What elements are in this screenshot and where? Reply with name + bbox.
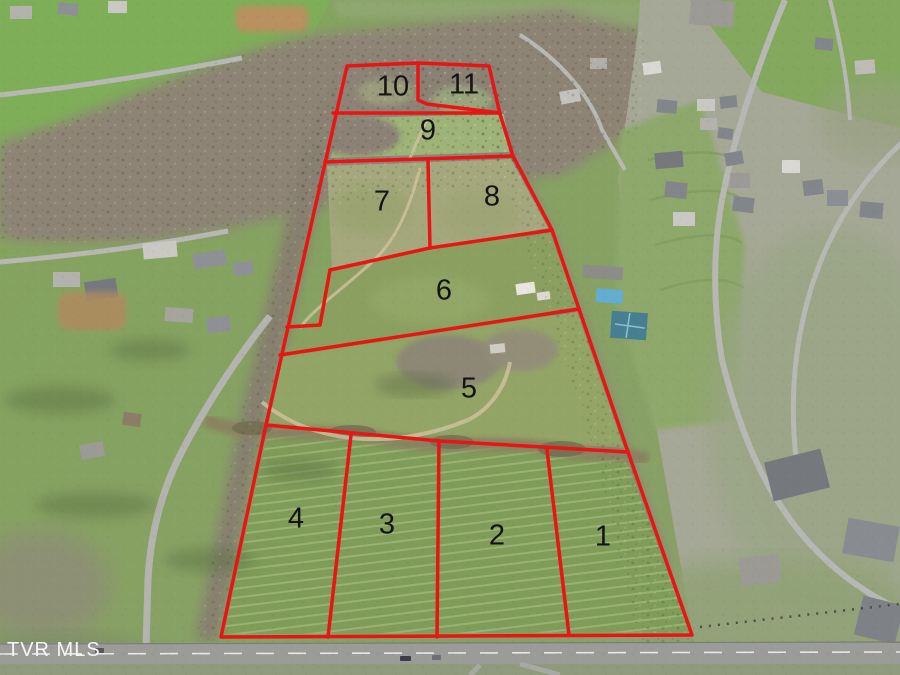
lot-2-1-divider bbox=[547, 450, 569, 635]
lot-4-3-divider bbox=[328, 435, 351, 637]
mls-watermark: TVR MLS bbox=[7, 639, 101, 662]
lot-7-8-north-line bbox=[325, 156, 513, 162]
lot-3-2-divider bbox=[437, 441, 439, 637]
parcel-boundary-overlay bbox=[0, 0, 900, 675]
lot-10-11-divider bbox=[418, 63, 500, 113]
lot-7-8-divider bbox=[428, 161, 430, 248]
lot-1-4-north-line bbox=[266, 425, 628, 452]
outer-boundary bbox=[221, 63, 692, 637]
aerial-photo: 1234567891011 TVR MLS bbox=[0, 0, 900, 675]
lot-6-north-line bbox=[330, 230, 552, 270]
lot-5-north-line bbox=[280, 309, 579, 355]
